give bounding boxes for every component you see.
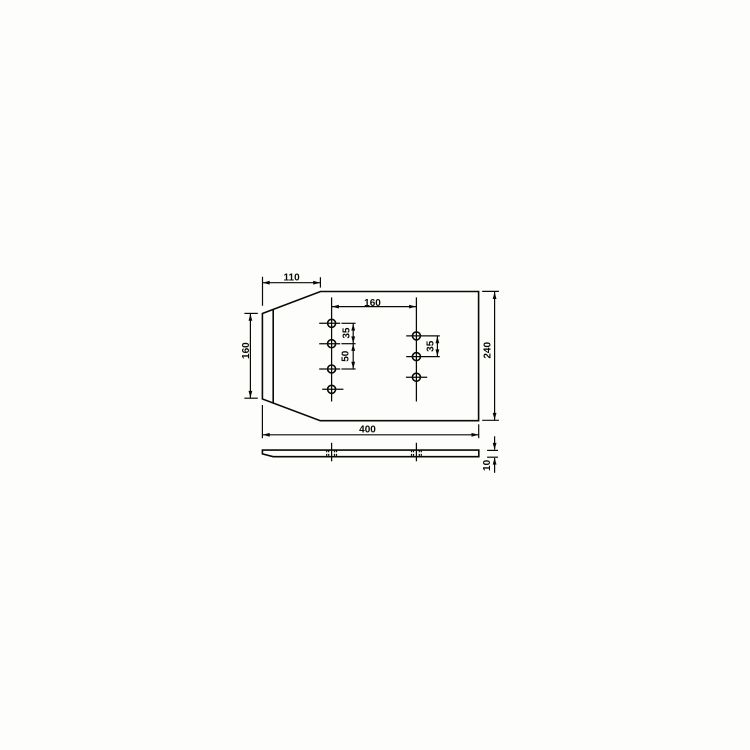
svg-text:400: 400: [359, 424, 376, 435]
svg-text:110: 110: [284, 273, 301, 284]
svg-text:10: 10: [482, 459, 493, 471]
svg-text:160: 160: [364, 298, 381, 309]
svg-text:50: 50: [341, 350, 352, 362]
svg-text:240: 240: [483, 342, 494, 359]
svg-text:35: 35: [341, 327, 352, 339]
svg-text:35: 35: [426, 340, 437, 352]
svg-text:160: 160: [241, 342, 252, 359]
